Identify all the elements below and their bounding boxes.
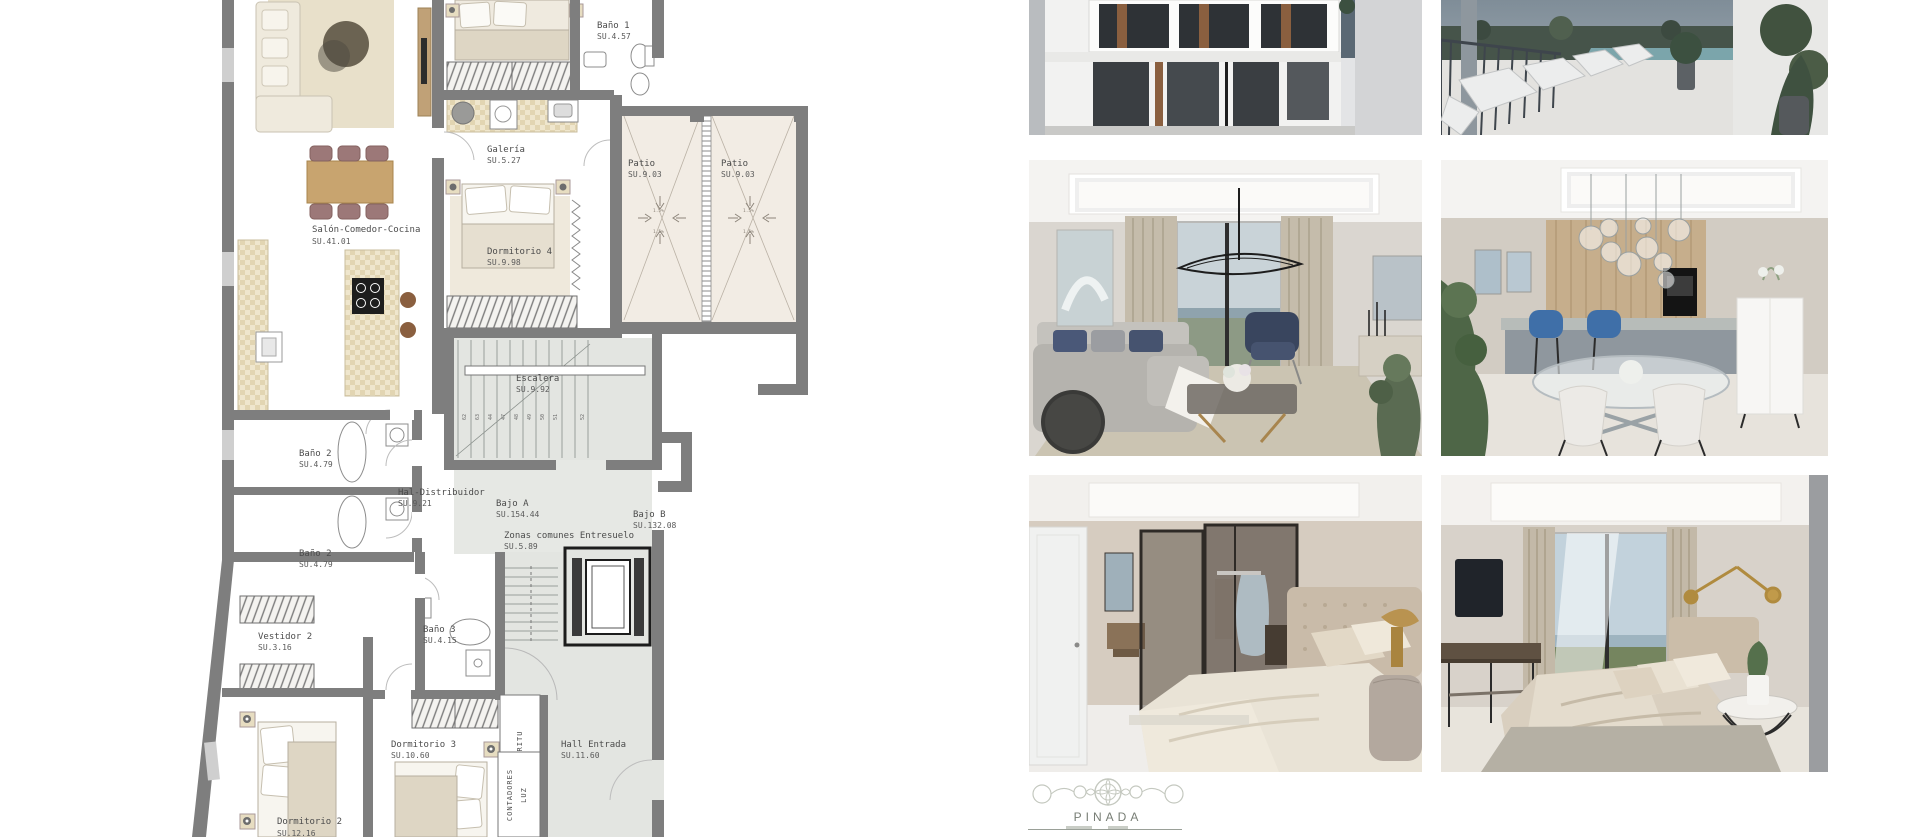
- room-label: Zonas comunes Entresuelo: [504, 531, 634, 541]
- room-label: Dormitorio 4: [487, 247, 552, 257]
- svg-text:49: 49: [527, 414, 533, 420]
- galeria-fixtures: [447, 98, 578, 132]
- svg-text:SU.5.27: SU.5.27: [487, 156, 521, 165]
- orchid-centerpiece: [1619, 360, 1643, 384]
- building-side: [1029, 0, 1045, 135]
- gallery-photo-dining-kitchen[interactable]: [1441, 160, 1828, 456]
- stool: [400, 322, 416, 338]
- radiator: [572, 200, 580, 290]
- window-band-lower: [1093, 60, 1329, 130]
- room-label: Bajo B: [633, 510, 666, 520]
- gallery-photo-bedroom-ensuite[interactable]: [1029, 475, 1422, 772]
- room-label: Baño 3: [423, 625, 456, 635]
- svg-text:52: 52: [580, 414, 586, 420]
- slope-label: 1.5%: [743, 229, 754, 235]
- bedroom-top: [446, 0, 583, 94]
- closet-rail: [1217, 571, 1261, 575]
- kitchen-island: [345, 250, 399, 396]
- ritu-label: RITU: [516, 731, 524, 752]
- svg-text:SU.132.08: SU.132.08: [633, 521, 677, 530]
- gallery-photo-facade[interactable]: [1029, 0, 1422, 135]
- door: [1029, 527, 1087, 765]
- svg-text:SU.9.03: SU.9.03: [721, 170, 755, 179]
- svg-text:SU.4.15: SU.4.15: [423, 636, 457, 645]
- slope-label: 1.5%: [653, 208, 664, 214]
- bathroom-1-fixtures: [584, 44, 654, 95]
- tv: [1455, 559, 1503, 617]
- room-label: Galería: [487, 145, 525, 155]
- svg-text:SU.10.60: SU.10.60: [391, 751, 430, 760]
- brand-name: PINADA: [1028, 810, 1188, 824]
- room-label: Vestidor 2: [258, 632, 312, 642]
- hanging-robe: [1236, 575, 1269, 656]
- floorplan-image[interactable]: 1.5% 1.5% 1.5% 1.5%: [0, 0, 840, 837]
- svg-text:62: 62: [462, 414, 468, 420]
- brand-ornament: [1028, 776, 1188, 810]
- window-band-upper: [1089, 0, 1339, 52]
- svg-text:SU.5.89: SU.5.89: [504, 542, 538, 551]
- svg-text:SU.154.44: SU.154.44: [496, 510, 540, 519]
- svg-text:SU.9.03: SU.9.03: [628, 170, 662, 179]
- room-label: Baño 2: [299, 449, 332, 459]
- room-label: Hal-Distribuidor: [398, 488, 485, 498]
- stool: [400, 292, 416, 308]
- svg-text:SU.4.79: SU.4.79: [299, 460, 333, 469]
- svg-text:44: 44: [488, 414, 494, 420]
- nightstand: [1369, 675, 1422, 761]
- room-label: Baño 2: [299, 549, 332, 559]
- room-label: Patio: [721, 159, 748, 169]
- utility-closets: RITU CONTADORES LUZ: [498, 695, 540, 837]
- room-label: Hall Entrada: [561, 740, 626, 750]
- svg-text:SU.12.16: SU.12.16: [277, 829, 316, 837]
- contadores-label: CONTADORES: [506, 769, 514, 821]
- elevator: [565, 548, 650, 645]
- svg-text:SU.9.92: SU.9.92: [516, 385, 550, 394]
- tv-unit: [418, 8, 431, 116]
- gallery-photo-bedroom-view[interactable]: [1441, 475, 1828, 772]
- room-label: Dormitorio 3: [391, 740, 456, 750]
- slope-label: 1.5%: [743, 208, 754, 214]
- room-label: Baño 1: [597, 21, 630, 31]
- gallery-photo-living-room[interactable]: [1029, 160, 1422, 456]
- svg-text:51: 51: [553, 414, 559, 420]
- svg-text:63: 63: [475, 414, 481, 420]
- kitchen: [238, 240, 416, 412]
- bathroom-2-fixtures: [338, 422, 408, 548]
- svg-text:50: 50: [540, 414, 546, 420]
- svg-text:SU.4.57: SU.4.57: [597, 32, 631, 41]
- svg-text:47: 47: [501, 414, 507, 420]
- svg-text:SU.9.98: SU.9.98: [487, 258, 521, 267]
- brand-divider: [1028, 829, 1182, 832]
- cutoff-content: [1108, 826, 1128, 829]
- brochure-page: 1.5% 1.5% 1.5% 1.5%: [0, 0, 1920, 837]
- dining-table: [307, 146, 393, 219]
- svg-text:SU.9.21: SU.9.21: [398, 499, 432, 508]
- room-label: Bajo A: [496, 499, 529, 509]
- living-dining-kitchen: [238, 0, 431, 412]
- cutoff-content: [1066, 826, 1092, 829]
- mirror: [1373, 256, 1422, 320]
- room-label: Escalera: [516, 374, 559, 384]
- slope-label: 1.5%: [653, 229, 664, 235]
- art-frame: [1057, 230, 1113, 326]
- svg-text:SU.4.79: SU.4.79: [299, 560, 333, 569]
- cooktop: [352, 278, 384, 314]
- floral-ornament-icon: [1033, 779, 1183, 805]
- room-label: Patio: [628, 159, 655, 169]
- svg-text:SU.11.60: SU.11.60: [561, 751, 600, 760]
- svg-text:SU.3.16: SU.3.16: [258, 643, 292, 652]
- svg-text:SU.41.01: SU.41.01: [312, 237, 351, 246]
- window: [222, 48, 234, 82]
- luz-label: LUZ: [520, 787, 528, 803]
- window: [222, 430, 234, 460]
- floorplan-svg: 1.5% 1.5% 1.5% 1.5%: [0, 0, 840, 837]
- rug: [1481, 725, 1781, 772]
- patio-divider: [702, 114, 711, 322]
- svg-text:48: 48: [514, 414, 520, 420]
- room-label: Dormitorio 2: [277, 817, 342, 827]
- patio-area: 1.5% 1.5% 1.5% 1.5%: [622, 112, 796, 324]
- gallery-photo-pool-terrace[interactable]: [1441, 0, 1828, 135]
- bedroom-3: [395, 698, 499, 837]
- window: [222, 252, 234, 286]
- floor-slab: [1045, 52, 1341, 62]
- window: [1553, 533, 1667, 681]
- wall-edge: [1809, 475, 1828, 772]
- room-label: Salón-Comedor-Cocina: [312, 224, 420, 235]
